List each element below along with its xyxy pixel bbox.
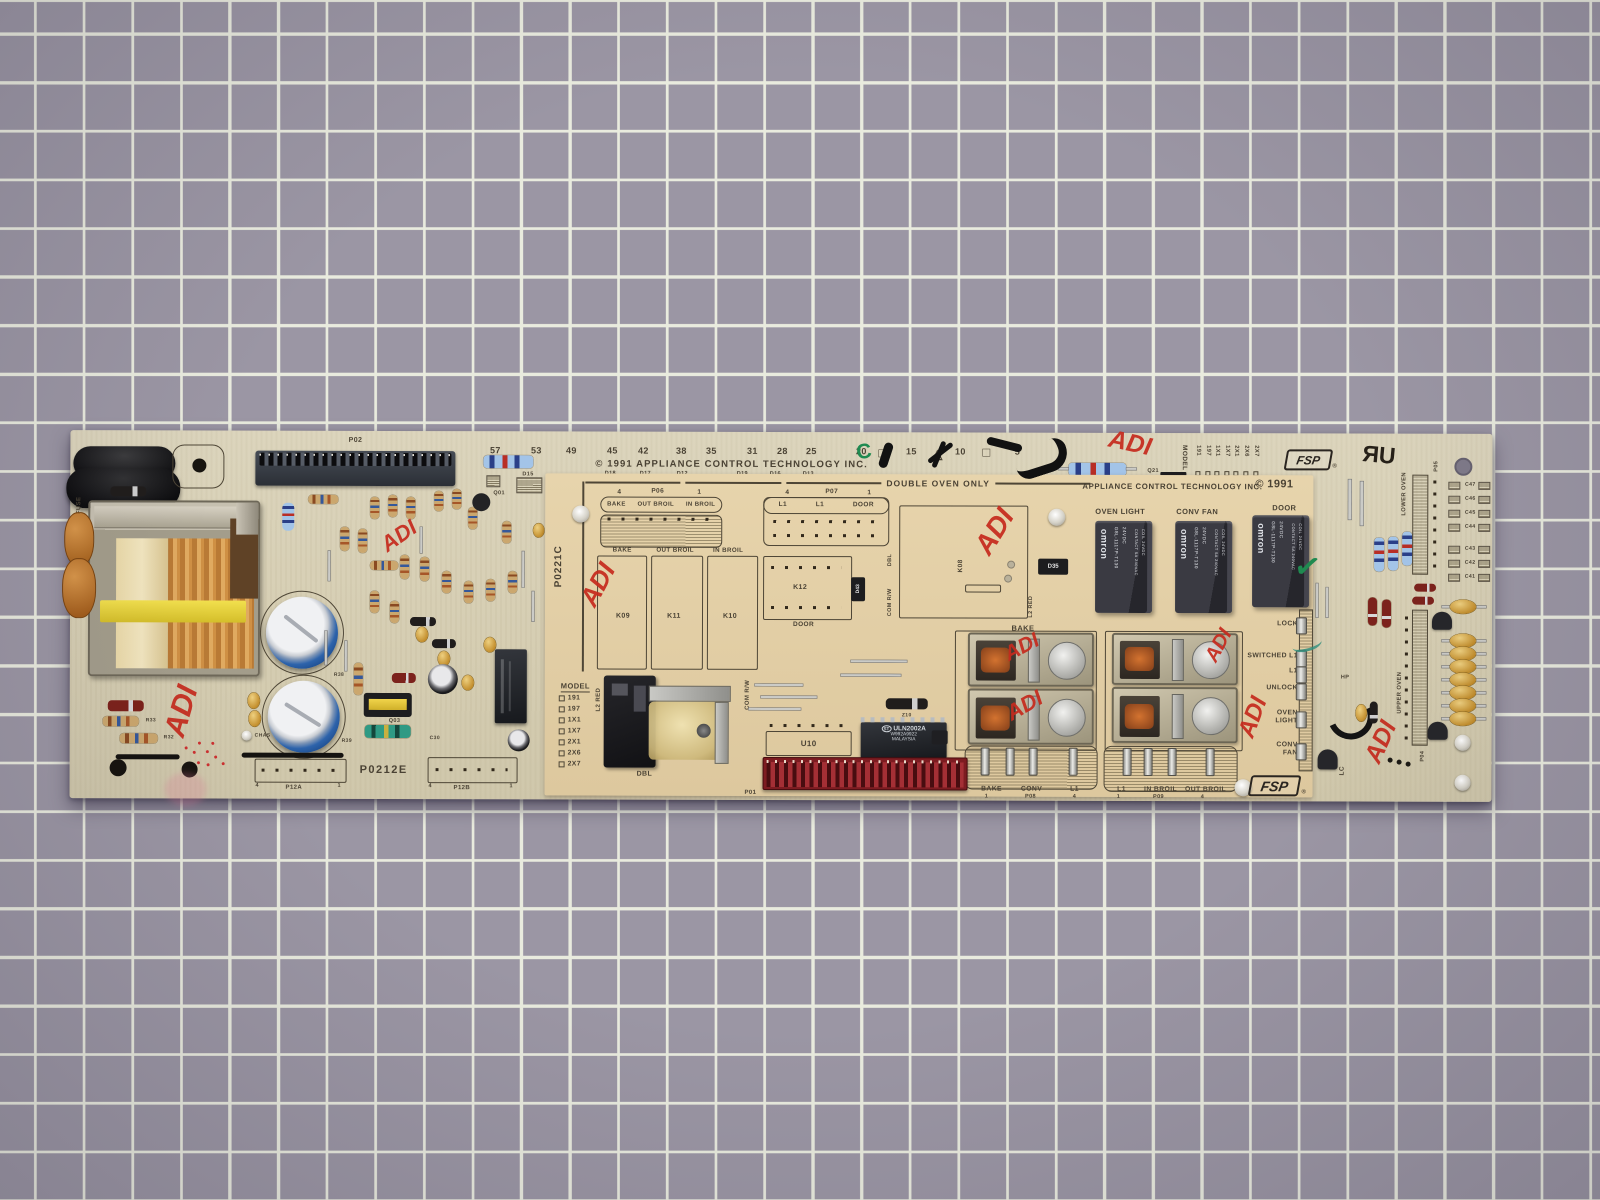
smd-pad	[1478, 574, 1490, 582]
transistor	[1432, 612, 1452, 630]
resistor-blue	[483, 455, 533, 468]
signal-label: OUT BROIL	[637, 502, 674, 508]
p06-pads	[607, 518, 715, 521]
capacitor-orange	[1450, 600, 1476, 614]
cap-ref: C47	[1465, 483, 1476, 488]
diode-red	[1414, 584, 1436, 592]
l2-red-label: L2 RED	[596, 682, 602, 712]
smd-pad	[1448, 574, 1460, 582]
pin-number: 1	[510, 784, 513, 790]
hp-label: HP	[1341, 675, 1349, 681]
model-checkbox	[559, 706, 565, 712]
pin-number: 4	[1073, 795, 1076, 801]
pin-number: 1	[985, 795, 988, 801]
ic-pins	[861, 717, 947, 722]
omron-contact: CONTACT 5A 240VAC	[1133, 529, 1137, 576]
jumper-wire	[532, 591, 534, 621]
silk-square-symbol: □	[982, 446, 990, 459]
p06-title-box: BAKE OUT BROIL IN BROIL	[600, 497, 722, 513]
resistor	[452, 489, 461, 509]
model-option: 1X1	[1213, 445, 1219, 457]
jumper-wire	[761, 696, 817, 698]
diode-red	[108, 700, 144, 711]
spade-terminal	[1296, 650, 1307, 667]
switched-l1-label: SWITCHED L1	[1247, 653, 1297, 660]
relay-contact	[634, 686, 646, 712]
fsp-logo: FSP	[1248, 775, 1302, 796]
jumper-wire	[749, 708, 801, 710]
k11-ref: K11	[667, 613, 681, 620]
resistor-blue	[1374, 538, 1384, 572]
capacitor-orange	[1450, 699, 1476, 713]
resistor	[508, 571, 517, 593]
unlock-label: UNLOCK	[1266, 685, 1298, 692]
d43-label: D43	[855, 585, 861, 594]
p04-connector	[1412, 610, 1428, 746]
signal-label: DOOR	[853, 502, 874, 509]
p01-header	[763, 757, 968, 791]
capacitor-orange	[1450, 647, 1476, 661]
resistor	[464, 581, 473, 603]
pin-number: 1	[867, 490, 871, 497]
d35-label: D35	[1048, 564, 1059, 570]
capacitor-orange	[1450, 686, 1476, 700]
omron-model: G8L-1117P-T130	[1270, 521, 1275, 563]
capacitor-orange	[1450, 673, 1476, 687]
d35-component: D35	[1038, 559, 1068, 575]
capacitor-electrolytic	[268, 681, 340, 753]
conv-fan-label: CONV FAN	[1176, 508, 1218, 516]
corner-hole	[1454, 458, 1472, 476]
pin-number: 4	[256, 784, 259, 790]
smd-pad	[1448, 560, 1460, 568]
capacitor-electrolytic	[266, 597, 338, 669]
ruler-number: 45	[607, 447, 618, 456]
spade-terminal	[1168, 748, 1177, 776]
q03-yellow-stripe	[369, 699, 407, 710]
spade-terminal	[1296, 617, 1307, 634]
resistor-green	[365, 725, 411, 738]
relay-board-copyright: © 1991	[1255, 479, 1293, 490]
smd-pad	[1448, 546, 1460, 554]
omron-relay: omron G8L-1117P-T130 24VDC CONTACT 5A 24…	[1175, 521, 1232, 613]
smd-pad	[1478, 560, 1490, 568]
jumper-wire	[1316, 583, 1318, 617]
resistor	[370, 497, 379, 519]
transformer	[88, 500, 260, 676]
smd-pad	[1448, 496, 1460, 504]
model-option: 2X6	[568, 750, 581, 757]
lower-oven-label: LOWER OVEN	[1402, 472, 1408, 516]
st-logo: ST	[882, 725, 892, 732]
d43-component: D43	[851, 577, 865, 601]
standoff	[1048, 509, 1065, 526]
pad	[1007, 561, 1015, 569]
silk-line	[786, 482, 881, 484]
resistor-blue	[1402, 532, 1412, 566]
oven-light-label: OVEN LIGHT	[1095, 508, 1145, 516]
relay-contact	[612, 684, 628, 696]
resistor	[370, 591, 379, 613]
dbl-relay-core	[697, 724, 711, 738]
ic-dip	[495, 649, 527, 723]
ruler-number: 57	[490, 446, 501, 455]
pin-number: 4	[429, 784, 432, 790]
p05-label: P05	[1434, 456, 1440, 472]
pad	[1004, 575, 1012, 583]
resistor	[358, 529, 367, 553]
com-rw-label: COM R/W	[888, 570, 894, 616]
model-option: 2X7	[1252, 445, 1258, 457]
signal-label: OUT BROIL	[1185, 787, 1226, 794]
q21-label: Q21	[1147, 469, 1159, 475]
p08-label: P08	[1025, 795, 1036, 801]
model-label: MODEL	[561, 682, 590, 692]
jumper-wire	[345, 641, 347, 671]
model-option: 2X1	[568, 739, 581, 746]
signal-label: IN BROIL	[686, 502, 716, 508]
capacitor-yellow	[416, 627, 428, 642]
p09-label: P09	[1153, 795, 1164, 801]
pcb-main-board: P02 FUSE 57 53 49 45 42 38 35 31 28 25 2…	[70, 430, 1493, 802]
spade-terminal	[1029, 748, 1038, 776]
lc-label: LC	[1340, 755, 1347, 775]
k08-ref: K08	[958, 552, 965, 572]
model-option: 1X7	[568, 728, 581, 735]
transistor	[1428, 722, 1448, 740]
resistor	[388, 495, 397, 517]
p12b-holes	[436, 768, 508, 771]
ul-recognized-logo: ЯU	[1361, 440, 1396, 470]
model-checkbox	[559, 728, 565, 734]
board-slot	[242, 753, 344, 758]
cap-ref: C46	[1465, 497, 1476, 502]
spade-terminal	[1144, 748, 1153, 776]
jumper-wire	[755, 684, 803, 686]
silk-line	[686, 482, 781, 484]
red-dot-scribble	[184, 746, 188, 750]
signal-label: L1	[1117, 787, 1126, 794]
dbl-relay-frame	[715, 702, 729, 764]
pin-number: 1	[697, 490, 701, 497]
handwritten-adi: ADI	[1107, 429, 1154, 459]
ruler-number: 42	[638, 447, 649, 456]
smd-pad	[1478, 482, 1490, 490]
capacitor-small-black	[428, 664, 458, 694]
model-checkbox	[559, 695, 565, 701]
chassis-pad	[242, 731, 252, 741]
omron-brand: omron	[1099, 529, 1108, 560]
cap-ref: C41	[1465, 575, 1476, 580]
omron-volt: 24VDC	[1278, 521, 1283, 538]
resistor-dark	[1382, 600, 1391, 628]
rivet	[1455, 735, 1471, 751]
r32-label: R32	[164, 735, 174, 740]
capacitor-yellow	[248, 693, 260, 709]
r33-label: R33	[146, 718, 156, 723]
p02-label: P02	[349, 437, 363, 444]
omron-model: G8L-1117P-T130	[1193, 527, 1198, 569]
p05-connector	[1412, 475, 1428, 575]
oven-light-label: OVEN LIGHT	[1266, 709, 1298, 725]
jumper-wire	[1348, 479, 1351, 519]
capacitor-orange	[1450, 634, 1476, 648]
model-option: 2X6	[1242, 445, 1248, 457]
jumper-wire	[841, 674, 901, 676]
smd-pad	[1448, 524, 1460, 532]
resistor-blue	[1388, 537, 1398, 571]
ruler-number: 10	[955, 447, 966, 456]
spade-terminal	[981, 748, 990, 776]
cap-streak	[284, 702, 322, 728]
k10-ref: K10	[723, 613, 737, 620]
diode-red	[1412, 597, 1434, 605]
transistor	[1318, 749, 1338, 769]
omron-relay: omron G8L-1117P-T130 24VDC CONTACT 5A 24…	[1095, 521, 1152, 613]
lead-wire	[1126, 468, 1136, 470]
resistor	[502, 521, 511, 543]
col-label: BAKE	[613, 548, 632, 554]
r39-label: R39	[342, 739, 352, 744]
relay-clear: ADI	[968, 688, 1094, 744]
p07-label: P07	[825, 489, 838, 496]
spade-terminal	[1123, 748, 1132, 776]
p07-pads	[773, 520, 878, 523]
copyright-main: © 1991 APPLIANCE CONTROL TECHNOLOGY INC.	[595, 460, 868, 470]
p07-pads	[773, 534, 878, 537]
model-option: 2X7	[568, 761, 581, 768]
p01-pin-glints	[767, 760, 964, 764]
resistor	[370, 561, 398, 570]
handwritten-adi: ADI	[378, 518, 420, 555]
model-option: 197	[1204, 445, 1210, 456]
relay-board-part-number: P0221C	[554, 535, 564, 587]
signal-label: BAKE	[607, 502, 626, 508]
capacitor-yellow	[462, 675, 474, 690]
silk-line	[585, 482, 680, 484]
registered-mark: ®	[1332, 463, 1337, 469]
dbl-label: DBL	[637, 771, 653, 778]
spade-terminal	[1296, 666, 1307, 683]
door-label: DOOR	[1272, 504, 1296, 512]
resistor	[420, 557, 429, 581]
resistor	[120, 733, 158, 743]
signal-label: CONV	[1021, 787, 1042, 794]
model-option: 191	[568, 695, 581, 702]
capacitor-yellow	[249, 711, 261, 727]
ruler-number: 35	[706, 447, 717, 456]
handwritten-adi: ADI	[1204, 626, 1235, 664]
jumper-wire	[851, 660, 907, 662]
smd-pad	[1478, 510, 1490, 518]
model-option: 1X1	[568, 717, 581, 724]
ic-marking	[501, 659, 504, 713]
col-label: OUT BROIL	[656, 548, 694, 554]
chas-label: CHAS	[255, 734, 271, 739]
pin-number: 4	[617, 490, 621, 497]
omron-volt: 24VDC	[1201, 527, 1206, 544]
p01-label: P01	[745, 790, 757, 796]
transistor	[472, 493, 490, 511]
capacitor-orange	[1450, 660, 1476, 674]
capacitor-orange	[1450, 712, 1476, 726]
capacitor-yellow	[533, 523, 544, 537]
dbl-relay-frame	[649, 686, 731, 702]
omron-volt: 24VDC	[1121, 527, 1126, 544]
resistor	[390, 601, 399, 623]
k12-ref: K12	[793, 584, 807, 591]
dbl-label: DBL	[888, 548, 894, 566]
c30-label: C30	[430, 736, 440, 741]
cap-ref: C42	[1465, 561, 1476, 566]
ruler-number: 31	[747, 447, 758, 456]
signal-label: L1	[779, 502, 787, 509]
resistor	[442, 571, 451, 593]
model-checkbox	[559, 717, 565, 723]
spade-terminal	[1296, 683, 1307, 700]
com-rw-label: COM R/W	[745, 678, 751, 710]
board-part-number: P0212E	[360, 765, 408, 776]
model-option: 2X1	[1232, 445, 1238, 457]
p01-teeth	[767, 762, 964, 788]
resistor-dark	[1368, 598, 1377, 626]
capacitor-small-black	[508, 729, 530, 751]
ruler-number: 53	[531, 446, 542, 455]
omron-brand: omron	[1256, 523, 1265, 554]
relay-daughterboard: P0221C DOUBLE OVEN ONLY 4 P06 1 BAKE OUT…	[545, 473, 1314, 797]
dbl-relay-coil	[649, 702, 723, 760]
cap-ref: C45	[1465, 511, 1476, 516]
model-checkbox	[559, 761, 565, 767]
transformer-yellow-tape	[100, 600, 246, 622]
jumper-wire	[1360, 482, 1363, 526]
spade-terminal	[1006, 748, 1015, 776]
p04-pads	[1405, 616, 1408, 740]
pin-number: 4	[785, 490, 789, 497]
col-label: IN BROIL	[713, 548, 743, 554]
resistor	[340, 527, 349, 551]
model-label: MODEL	[1180, 445, 1187, 471]
cap-streak	[283, 614, 318, 643]
diode	[410, 617, 436, 626]
mount-hole	[192, 458, 206, 472]
k09-ref: K09	[616, 613, 630, 620]
pin-number: 1	[338, 784, 341, 790]
smd-pad	[516, 477, 542, 493]
signal-label: L1	[816, 502, 824, 509]
model-option: 1X7	[1223, 445, 1229, 457]
rivet	[1455, 775, 1471, 791]
k12-pads	[771, 566, 841, 569]
diode-red	[392, 673, 416, 683]
ruler-number: 49	[566, 446, 577, 455]
u10-outline: U10	[766, 731, 852, 756]
spade-terminal	[1296, 711, 1307, 728]
resistor	[400, 555, 409, 579]
q01-label: Q01	[493, 491, 505, 497]
spade-terminal	[1069, 748, 1078, 776]
fsp-text: FSP	[1295, 453, 1321, 467]
diode	[110, 486, 146, 496]
omron-coil: COIL 24VDC	[1220, 529, 1224, 556]
resistor	[434, 491, 443, 511]
z10-diode	[886, 698, 928, 709]
door-label: DOOR	[793, 622, 814, 629]
resistor	[308, 495, 338, 504]
relay-clear: ADI	[968, 632, 1094, 686]
capacitor-yellow	[1356, 705, 1367, 722]
omron-contact: CONTACT 5A 240VAC	[1213, 529, 1217, 576]
silk-mark	[965, 584, 1001, 592]
upper-oven-label: UPPER OVEN	[1398, 660, 1404, 714]
transformer-wire-blob	[62, 558, 96, 618]
pads	[770, 724, 850, 727]
double-oven-label: DOUBLE OVEN ONLY	[886, 479, 990, 488]
smd-pad	[1478, 546, 1490, 554]
spade-terminal	[1296, 743, 1307, 760]
jumper-wire	[1326, 587, 1328, 617]
l2-red-label: L2 RED	[1029, 586, 1035, 618]
resistor	[468, 507, 477, 529]
pink-smudge	[164, 772, 206, 806]
cap-ref: C44	[1465, 525, 1476, 530]
smd-pad	[1448, 510, 1460, 518]
omron-model: G8L-1117P-T130	[1113, 527, 1118, 569]
u10-label: U10	[801, 740, 817, 748]
transformer-clip	[236, 503, 258, 535]
resistor	[354, 663, 363, 695]
ic-marking	[509, 661, 511, 711]
p05-pads	[1433, 480, 1436, 568]
cap-ref: C43	[1465, 547, 1476, 552]
smd-pad	[1478, 524, 1490, 532]
relay-clear: ADI	[1112, 633, 1238, 685]
handwritten-green-check: ✓	[1291, 545, 1324, 587]
fsp-logo: FSP	[1284, 449, 1334, 470]
jumper-wire	[325, 631, 327, 665]
smd-pad	[1478, 496, 1490, 504]
model-checkbox	[559, 739, 565, 745]
spade-terminal	[1206, 748, 1215, 776]
ruler-number: 38	[676, 447, 687, 456]
signal-label: L1	[1070, 787, 1079, 794]
model-option: 191	[1194, 445, 1200, 456]
smd-pad	[1448, 482, 1460, 490]
pin-number: 1	[1117, 795, 1120, 801]
jumper-wire	[328, 551, 330, 581]
capacitor-blue	[282, 503, 294, 531]
model-option: 197	[568, 706, 581, 713]
p07-title-box: L1 L1 DOOR	[763, 497, 889, 514]
p12a-holes	[262, 769, 338, 772]
omron-brand: omron	[1179, 529, 1188, 560]
ruler-number: 15	[906, 447, 917, 456]
handwritten-adi: ADI	[162, 683, 201, 740]
signal-label: BAKE	[981, 787, 1002, 794]
p04-label: P04	[1421, 746, 1427, 762]
lock-label: LOCK	[1277, 621, 1298, 628]
registered-mark: ®	[1302, 789, 1307, 795]
resistor	[103, 716, 139, 726]
resistor	[486, 579, 495, 601]
standoff	[572, 505, 589, 522]
diode	[432, 639, 456, 648]
signal-label: IN BROIL	[1144, 787, 1177, 794]
p06-label: P06	[651, 489, 664, 496]
q03-label: Q03	[389, 719, 401, 725]
k12-pads	[771, 606, 841, 609]
smd-component	[932, 730, 948, 744]
